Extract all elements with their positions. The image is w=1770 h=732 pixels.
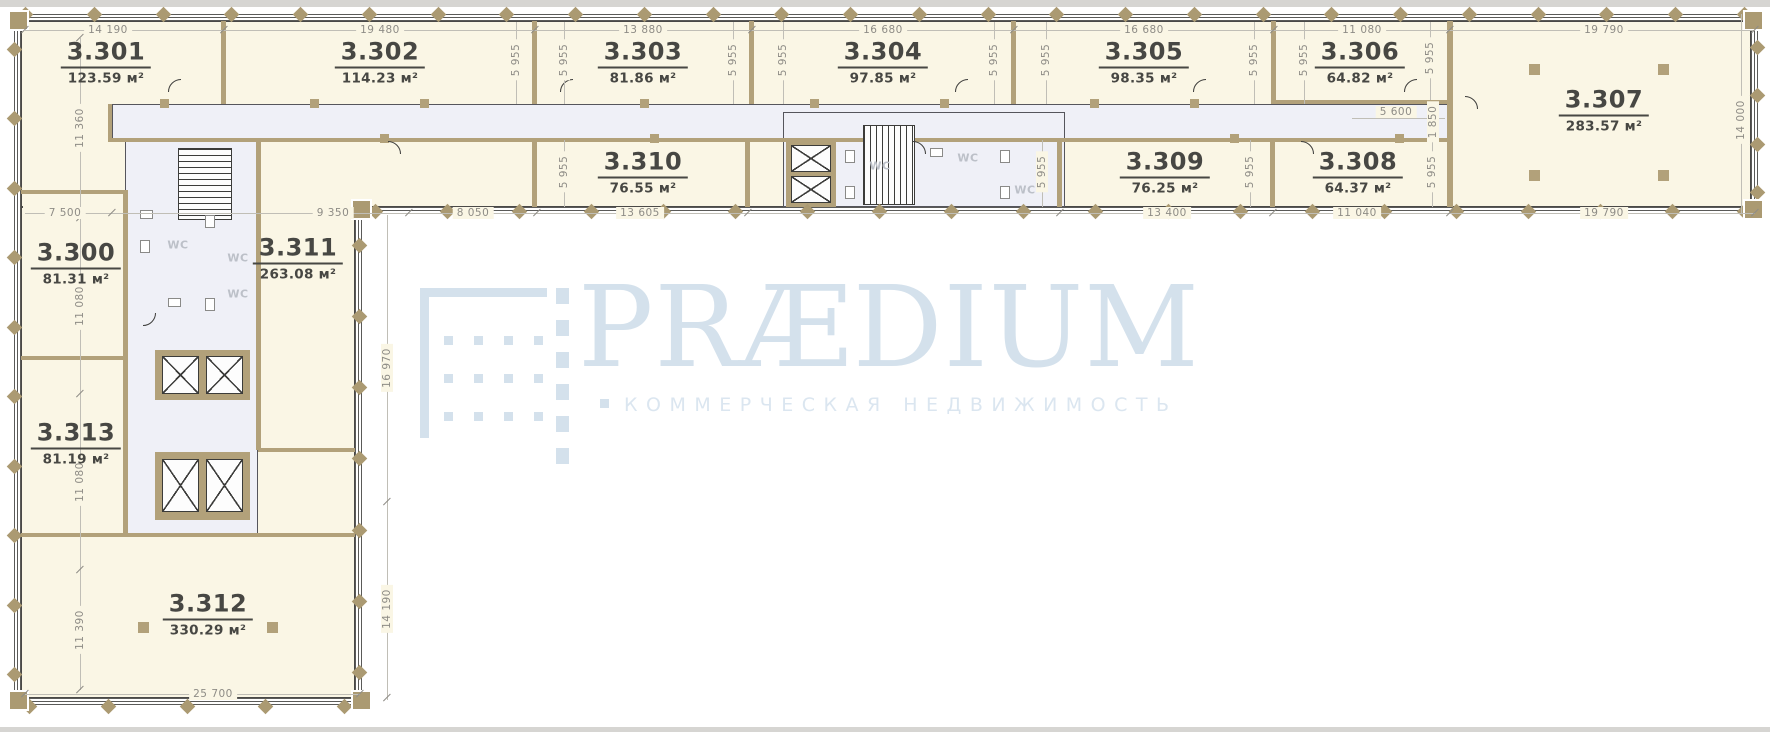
elevator-icon xyxy=(162,356,199,394)
corridor xyxy=(112,104,1450,140)
room-number: 3.306 xyxy=(1315,38,1405,69)
wall xyxy=(108,104,112,142)
diamond-column-icon xyxy=(7,667,23,683)
elevator-icon xyxy=(791,176,831,203)
diamond-column-icon xyxy=(800,204,816,220)
dim-line-inner xyxy=(25,213,1755,214)
logo-mark-dot xyxy=(444,336,453,345)
diamond-column-icon xyxy=(86,7,102,23)
wall xyxy=(745,140,750,207)
wall xyxy=(1011,21,1016,104)
column-marker xyxy=(310,99,319,108)
diamond-column-icon xyxy=(1520,204,1536,220)
room-area: 76.55 м² xyxy=(598,181,688,197)
column-marker xyxy=(1395,134,1404,143)
column-marker xyxy=(1230,134,1239,143)
column-marker xyxy=(810,99,819,108)
dimension-label: 13 880 xyxy=(619,24,667,36)
dimension-label: 19 790 xyxy=(1580,207,1628,219)
top-gray-bar xyxy=(0,0,1770,7)
dimension-label: 5 600 xyxy=(1376,106,1417,118)
diamond-column-icon xyxy=(155,7,171,23)
room-area: 283.57 м² xyxy=(1559,119,1649,135)
logo-mark-dash xyxy=(556,320,569,336)
facade-columns-right-left-wing xyxy=(353,240,366,678)
room-area: 330.29 м² xyxy=(163,623,253,639)
column-marker xyxy=(1658,170,1669,181)
room-label-3312: 3.312 330.29 м² xyxy=(163,590,253,639)
diamond-column-icon xyxy=(1750,40,1766,56)
wall xyxy=(258,448,358,452)
dimension-label: 11 390 xyxy=(74,606,86,654)
room-number: 3.312 xyxy=(163,590,253,621)
diamond-column-icon xyxy=(944,204,960,220)
dimension-label: 14 000 xyxy=(1735,96,1747,144)
column-marker xyxy=(640,99,649,108)
room-area: 81.31 м² xyxy=(31,272,121,288)
corner-column xyxy=(1743,199,1764,220)
wc-fixture xyxy=(930,148,943,157)
diamond-column-icon xyxy=(293,7,309,23)
diamond-column-icon xyxy=(7,250,23,266)
elevator-icon xyxy=(791,145,831,172)
column-marker xyxy=(267,622,278,633)
room-area: 98.35 м² xyxy=(1099,71,1189,87)
facade-columns-top xyxy=(20,8,1750,21)
logo-mark-dot xyxy=(444,412,453,421)
diamond-column-icon xyxy=(1255,7,1271,23)
diamond-column-icon xyxy=(7,42,23,58)
dimension-label: 5 955 xyxy=(988,40,1000,81)
logo-mark-top-bar xyxy=(420,288,547,297)
dimension-label: 14 190 xyxy=(381,585,393,633)
diamond-column-icon xyxy=(911,7,927,23)
diamond-column-icon xyxy=(1665,204,1681,220)
dimension-label: 11 040 xyxy=(1333,207,1381,219)
diamond-column-icon xyxy=(179,699,195,715)
room-number: 3.302 xyxy=(335,38,425,69)
dimension-label: 11 080 xyxy=(1338,24,1386,36)
wall xyxy=(256,140,261,450)
column-marker xyxy=(650,134,659,143)
room-label-3306: 3.306 64.82 м² xyxy=(1315,38,1405,87)
dimension-label: 5 955 xyxy=(1040,40,1052,81)
logo-mark-left-bar xyxy=(420,288,429,438)
dimension-label: 5 955 xyxy=(510,40,522,81)
room-number: 3.310 xyxy=(598,148,688,179)
column-marker xyxy=(138,622,149,633)
diamond-column-icon xyxy=(705,7,721,23)
diamond-column-icon xyxy=(1599,7,1615,23)
diamond-column-icon xyxy=(774,7,790,23)
logo-mark-dot xyxy=(474,412,483,421)
room-area: 81.19 м² xyxy=(31,452,121,468)
corner-column xyxy=(1743,10,1764,31)
room-number: 3.307 xyxy=(1559,86,1649,117)
dimension-label: 1 850 xyxy=(1427,102,1439,143)
room-label-3311: 3.311 263.08 м² xyxy=(253,234,343,283)
diamond-column-icon xyxy=(352,522,368,538)
wc-fixture xyxy=(1000,186,1010,199)
diamond-column-icon xyxy=(7,319,23,335)
wall xyxy=(123,190,128,535)
diamond-column-icon xyxy=(258,699,274,715)
wall xyxy=(532,21,537,104)
logo-mark-dot xyxy=(504,412,513,421)
diamond-column-icon xyxy=(7,528,23,544)
diamond-column-icon xyxy=(843,7,859,23)
room-area: 97.85 м² xyxy=(838,71,928,87)
room-area: 64.37 м² xyxy=(1313,181,1403,197)
wc-fixture xyxy=(140,210,153,219)
room-number: 3.305 xyxy=(1099,38,1189,69)
diamond-column-icon xyxy=(584,204,600,220)
dimension-label: 5 955 xyxy=(1426,152,1438,193)
diamond-column-icon xyxy=(568,7,584,23)
column-marker xyxy=(160,99,169,108)
column-marker xyxy=(420,99,429,108)
dimension-label: 5 955 xyxy=(777,40,789,81)
diamond-column-icon xyxy=(352,309,368,325)
diamond-column-icon xyxy=(430,7,446,23)
room-area: 263.08 м² xyxy=(253,267,343,283)
diamond-column-icon xyxy=(1232,204,1248,220)
logo-mark-dot xyxy=(474,336,483,345)
diamond-column-icon xyxy=(1750,88,1766,104)
dimension-label: 5 955 xyxy=(558,152,570,193)
wall xyxy=(749,21,754,104)
wc-fixture xyxy=(140,240,150,253)
room-label-3304: 3.304 97.85 м² xyxy=(838,38,928,87)
dimension-label: 13 605 xyxy=(616,207,664,219)
logo-mark-dot xyxy=(534,336,543,345)
diamond-column-icon xyxy=(1750,185,1766,201)
diamond-column-icon xyxy=(1088,204,1104,220)
diamond-column-icon xyxy=(352,594,368,610)
wc-fixture xyxy=(845,150,855,163)
wc-fixture xyxy=(845,186,855,199)
wall xyxy=(21,356,125,360)
floor-plan-page: { "watermark": { "wordmark": "PRÆDIUM", … xyxy=(0,0,1770,732)
corner-column xyxy=(351,199,372,220)
diamond-column-icon xyxy=(352,380,368,396)
wall xyxy=(21,190,125,194)
diamond-column-icon xyxy=(7,389,23,405)
logo-subtitle-bullet xyxy=(600,399,609,408)
room-label-3313: 3.313 81.19 м² xyxy=(31,419,121,468)
diamond-column-icon xyxy=(1304,204,1320,220)
diamond-column-icon xyxy=(7,597,23,613)
logo-mark-dot xyxy=(534,412,543,421)
room-number: 3.309 xyxy=(1120,148,1210,179)
wc-fixture xyxy=(1000,150,1010,163)
dimension-label: 5 955 xyxy=(1036,152,1048,193)
room-label-3309: 3.309 76.25 м² xyxy=(1120,148,1210,197)
wc-fixture xyxy=(205,298,215,311)
dimension-label: 13 400 xyxy=(1143,207,1191,219)
diamond-column-icon xyxy=(1016,204,1032,220)
diamond-column-icon xyxy=(7,458,23,474)
column-marker xyxy=(380,134,389,143)
logo-subtitle: КОММЕРЧЕСКАЯ НЕДВИЖИМОСТЬ xyxy=(624,394,1178,416)
wall xyxy=(1274,100,1450,104)
room-number: 3.301 xyxy=(61,38,151,69)
diamond-column-icon xyxy=(100,699,116,715)
dimension-label: 5 955 xyxy=(727,40,739,81)
elevator-icon xyxy=(206,459,243,512)
room-label-3300: 3.300 81.31 м² xyxy=(31,239,121,288)
room-label-3302: 3.302 114.23 м² xyxy=(335,38,425,87)
diamond-column-icon xyxy=(352,238,368,254)
diamond-column-icon xyxy=(1049,7,1065,23)
room-area: 76.25 м² xyxy=(1120,181,1210,197)
wc-label: WC xyxy=(1014,184,1035,197)
diamond-column-icon xyxy=(980,7,996,23)
dimension-label: 7 500 xyxy=(45,207,86,219)
wall xyxy=(221,21,226,104)
logo-mark-dot xyxy=(504,374,513,383)
diamond-column-icon xyxy=(337,699,353,715)
diamond-column-icon xyxy=(7,181,23,197)
diamond-column-icon xyxy=(352,665,368,681)
room-area: 123.59 м² xyxy=(61,71,151,87)
facade-columns-left xyxy=(8,44,21,680)
diamond-column-icon xyxy=(872,204,888,220)
room-number: 3.300 xyxy=(31,239,121,270)
wall xyxy=(1271,21,1276,104)
elevator-icon xyxy=(162,459,199,512)
dimension-label: 9 350 xyxy=(313,207,354,219)
logo-mark-dash xyxy=(556,384,569,400)
wc-label: WC xyxy=(869,160,890,173)
dim-tick xyxy=(383,694,391,702)
diamond-column-icon xyxy=(512,204,528,220)
diamond-column-icon xyxy=(1461,7,1477,23)
diamond-column-icon xyxy=(224,7,240,23)
diamond-column-icon xyxy=(1530,7,1546,23)
room-label-3308: 3.308 64.37 м² xyxy=(1313,148,1403,197)
elevator-icon xyxy=(206,356,243,394)
logo-wordmark: PRÆDIUM xyxy=(578,272,1200,384)
dimension-label: 5 955 xyxy=(1298,40,1310,81)
diamond-column-icon xyxy=(361,7,377,23)
diamond-column-icon xyxy=(1393,7,1409,23)
room-label-3305: 3.305 98.35 м² xyxy=(1099,38,1189,87)
diamond-column-icon xyxy=(1750,136,1766,152)
bottom-gray-bar xyxy=(0,727,1770,732)
staircase-icon xyxy=(178,148,232,220)
wall xyxy=(1447,21,1453,207)
column-marker xyxy=(1529,64,1540,75)
dimension-label: 11 360 xyxy=(74,104,86,152)
dimension-label: 19 790 xyxy=(1580,24,1628,36)
wc-label: WC xyxy=(167,239,188,252)
column-marker xyxy=(1529,170,1540,181)
logo-mark-dash xyxy=(556,448,569,464)
dimension-label: 11 080 xyxy=(74,282,86,330)
logo-mark-dot xyxy=(474,374,483,383)
wall xyxy=(21,533,360,537)
dimension-label: 16 680 xyxy=(859,24,907,36)
wc-label: WC xyxy=(227,288,248,301)
diamond-column-icon xyxy=(636,7,652,23)
column-marker xyxy=(940,99,949,108)
wall xyxy=(1270,140,1275,207)
column-marker xyxy=(1658,64,1669,75)
diamond-column-icon xyxy=(1668,7,1684,23)
diamond-column-icon xyxy=(728,204,744,220)
column-marker xyxy=(1190,99,1199,108)
room-number: 3.311 xyxy=(253,234,343,265)
diamond-column-icon xyxy=(1186,7,1202,23)
facade-columns-bottom xyxy=(24,700,350,713)
room-area: 114.23 м² xyxy=(335,71,425,87)
wc-fixture xyxy=(205,215,215,228)
dimension-label: 8 050 xyxy=(453,207,494,219)
wc-label: WC xyxy=(227,252,248,265)
wall xyxy=(532,140,537,207)
wc-fixture xyxy=(168,298,181,307)
column-marker xyxy=(1090,99,1099,108)
dimension-label: 19 480 xyxy=(356,24,404,36)
logo-mark-dot xyxy=(504,336,513,345)
dimension-label: 5 955 xyxy=(1248,40,1260,81)
diamond-column-icon xyxy=(7,111,23,127)
facade-columns-right xyxy=(1751,42,1764,198)
dimension-label: 5 955 xyxy=(558,40,570,81)
dimension-label: 16 680 xyxy=(1120,24,1168,36)
logo-mark-dot xyxy=(534,374,543,383)
logo-mark-dash xyxy=(556,288,569,304)
dimension-label: 5 955 xyxy=(1244,152,1256,193)
dimension-label: 25 700 xyxy=(189,688,237,700)
dimension-label: 16 970 xyxy=(381,344,393,392)
room-label-3307: 3.307 283.57 м² xyxy=(1559,86,1649,135)
dimension-label: 14 190 xyxy=(84,24,132,36)
room-area: 81.86 м² xyxy=(598,71,688,87)
room-label-3301: 3.301 123.59 м² xyxy=(61,38,151,87)
diamond-column-icon xyxy=(1118,7,1134,23)
dimension-label: 5 955 xyxy=(1424,38,1436,79)
room-label-3303: 3.303 81.86 м² xyxy=(598,38,688,87)
room-number: 3.313 xyxy=(31,419,121,450)
logo-mark-dash xyxy=(556,352,569,368)
diamond-column-icon xyxy=(1324,7,1340,23)
logo-mark-dot xyxy=(444,374,453,383)
room-label-3310: 3.310 76.55 м² xyxy=(598,148,688,197)
room-number: 3.303 xyxy=(598,38,688,69)
wall xyxy=(1057,140,1062,207)
room-area: 64.82 м² xyxy=(1315,71,1405,87)
wc-label: WC xyxy=(957,152,978,165)
diamond-column-icon xyxy=(499,7,515,23)
room-number: 3.304 xyxy=(838,38,928,69)
diamond-column-icon xyxy=(352,451,368,467)
logo-mark-dash xyxy=(556,416,569,432)
room-number: 3.308 xyxy=(1313,148,1403,179)
